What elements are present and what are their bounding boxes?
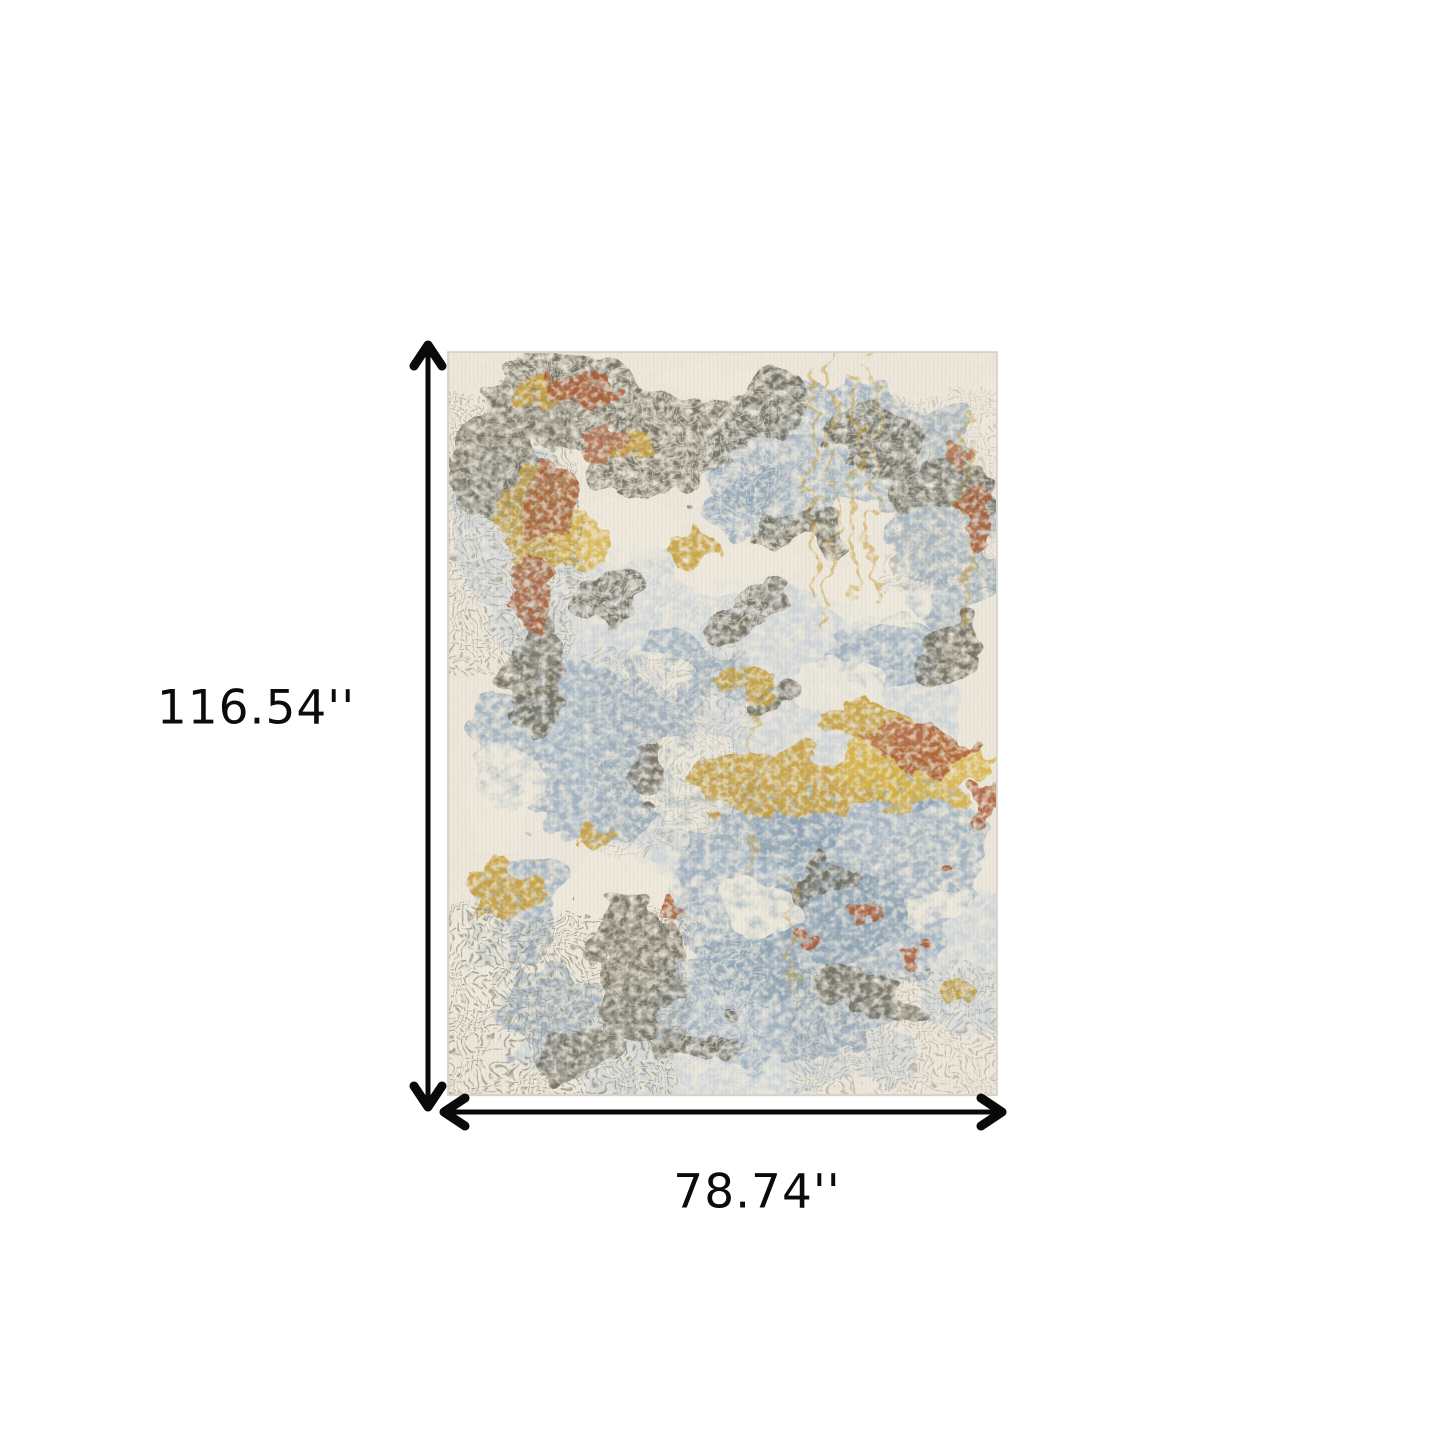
product-dimension-diagram: 116.54'' 78.74'' (0, 0, 1445, 1445)
rug-art (448, 352, 997, 1095)
width-dimension-arrow (434, 1092, 1012, 1132)
height-dimension-label: 116.54'' (157, 681, 355, 736)
rug-weave-striation (448, 352, 997, 1095)
height-dimension-arrow (408, 338, 448, 1118)
rug-swatch (448, 352, 997, 1095)
width-dimension-label: 78.74'' (673, 1165, 840, 1220)
